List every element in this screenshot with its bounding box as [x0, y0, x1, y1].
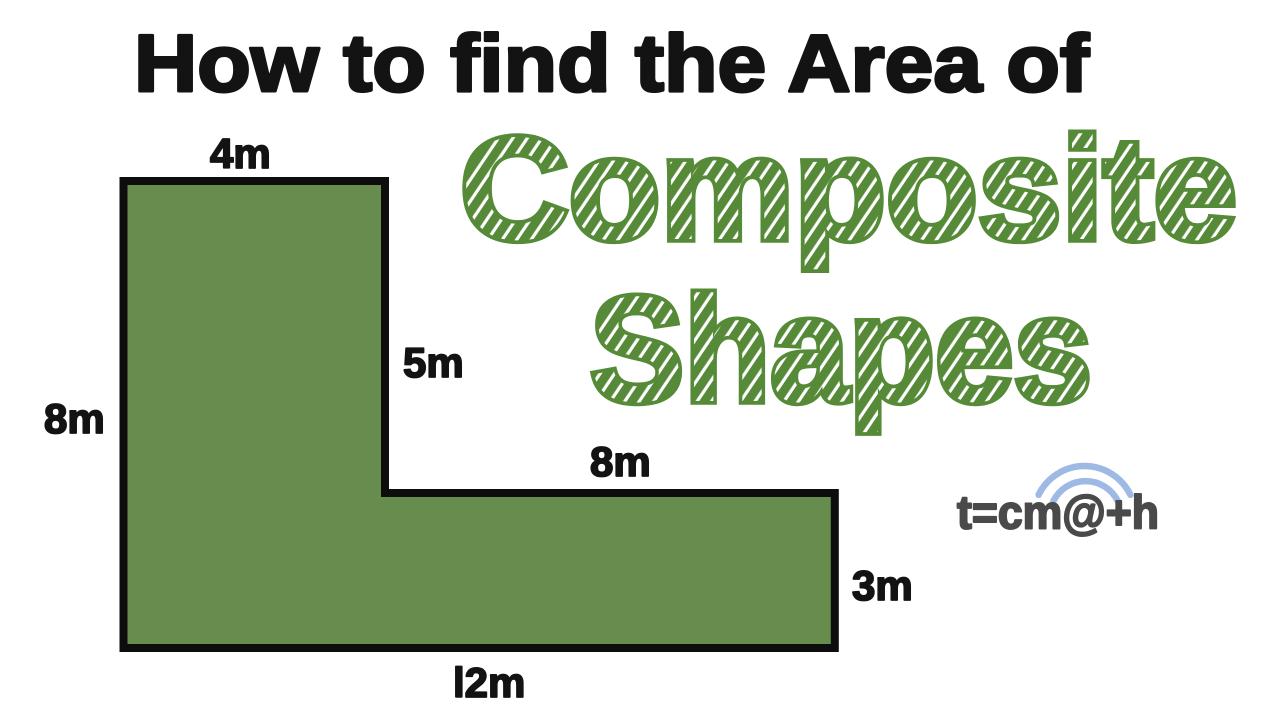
svg-text:l2m: l2m [453, 659, 525, 706]
svg-text:How to find the Area of: How to find the Area of [134, 19, 1090, 109]
svg-text:t=cm@+h: t=cm@+h [957, 486, 1159, 539]
svg-text:5m: 5m [403, 339, 464, 386]
svg-text:8m: 8m [590, 438, 651, 485]
svg-text:4m: 4m [210, 130, 271, 177]
svg-text:Shapes: Shapes [590, 265, 1092, 433]
svg-text:8m: 8m [44, 395, 105, 442]
svg-text:3m: 3m [852, 562, 913, 609]
svg-text:Composite: Composite [460, 107, 1237, 270]
